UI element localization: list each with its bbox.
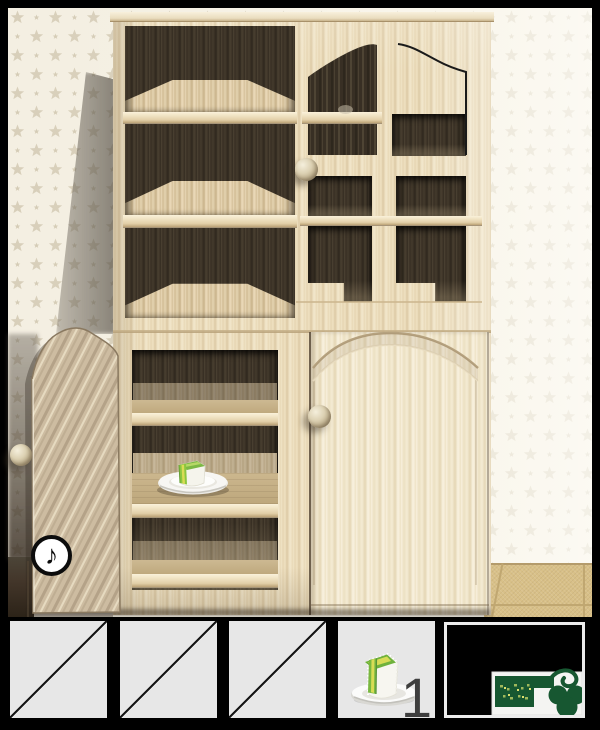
inventory-slot-2[interactable] bbox=[120, 621, 217, 718]
shelf-front bbox=[300, 216, 482, 226]
floor-tile-line bbox=[583, 565, 585, 619]
floor-tile-line bbox=[27, 561, 29, 617]
shelf-front bbox=[123, 215, 297, 228]
door-seam bbox=[311, 604, 489, 606]
floor-tile-line bbox=[484, 604, 592, 606]
upper-cabinet-knob[interactable] bbox=[295, 158, 318, 181]
compartment-backwall bbox=[133, 541, 277, 560]
cubby-top-left[interactable] bbox=[308, 176, 372, 216]
music-note-icon: ♪ bbox=[45, 542, 59, 569]
item-count: 1 bbox=[401, 670, 432, 726]
shelf-surface bbox=[132, 400, 278, 413]
open-door-knob[interactable] bbox=[10, 444, 32, 466]
floor-tile-line bbox=[490, 563, 503, 620]
upper-shelf-compartment-3[interactable] bbox=[125, 228, 295, 318]
floor-tiles bbox=[484, 563, 592, 617]
upper-right-opening[interactable] bbox=[392, 114, 466, 156]
inventory-slot-1[interactable] bbox=[10, 621, 107, 718]
door-groove bbox=[475, 380, 477, 585]
floor-shadowed-corner bbox=[8, 557, 34, 617]
lower-right-door-knob[interactable] bbox=[308, 405, 331, 428]
compartment-backwall bbox=[133, 383, 277, 400]
inventory-slot-3[interactable] bbox=[229, 621, 326, 718]
upper-shelf-compartment-1[interactable] bbox=[125, 26, 295, 113]
door-seam bbox=[309, 332, 311, 615]
upper-shelf-compartment-2[interactable] bbox=[125, 124, 295, 216]
cabinet-top-board bbox=[110, 12, 494, 22]
shelf-front bbox=[123, 112, 297, 124]
shelf-front bbox=[132, 574, 278, 588]
lower-right-door[interactable] bbox=[311, 332, 489, 615]
cabinet-seam bbox=[296, 301, 482, 303]
music-toggle-button[interactable]: ♪ bbox=[31, 535, 72, 576]
shelf-front bbox=[132, 504, 278, 518]
inventory-item-view[interactable] bbox=[444, 622, 585, 718]
shelf-front bbox=[302, 112, 382, 124]
cubby-top-right[interactable] bbox=[396, 176, 466, 216]
small-shelf-object[interactable] bbox=[338, 105, 353, 114]
inventory-slot-4[interactable]: 1 bbox=[338, 621, 435, 718]
door-seam bbox=[487, 332, 489, 615]
game-screen: ♪ 1 bbox=[0, 0, 600, 730]
green-key-icon bbox=[447, 625, 582, 715]
shelf-surface bbox=[132, 560, 278, 574]
shelf-front bbox=[132, 413, 278, 426]
